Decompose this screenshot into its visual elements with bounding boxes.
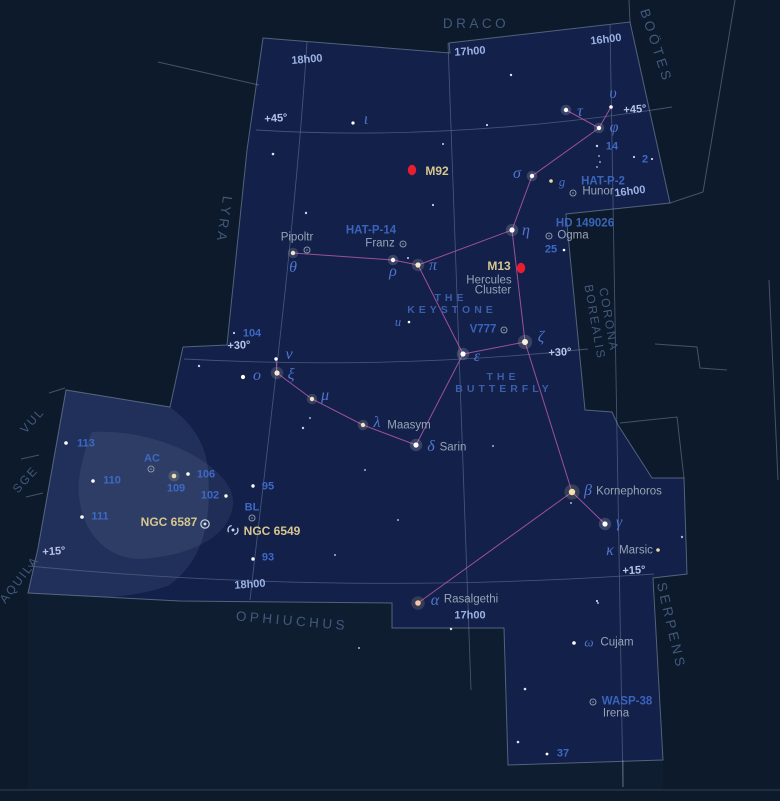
label-star-v777[interactable]: V777 bbox=[470, 323, 497, 336]
label-hunor[interactable]: Hunor bbox=[582, 185, 613, 198]
label-star-mu[interactable]: μ bbox=[321, 387, 329, 405]
label-star-u[interactable]: u bbox=[395, 315, 401, 329]
label-star-g[interactable]: g bbox=[559, 175, 565, 189]
label-star-rho[interactable]: ρ bbox=[389, 263, 397, 281]
label-keystone-2: KEYSTONE bbox=[407, 304, 497, 316]
label-star-111[interactable]: 111 bbox=[91, 511, 108, 524]
label-star-iota[interactable]: ι bbox=[364, 111, 368, 129]
label-ogma[interactable]: Ogma bbox=[557, 229, 588, 242]
label-star-lambda[interactable]: λ bbox=[374, 414, 381, 432]
label-star-eta[interactable]: η bbox=[522, 222, 530, 240]
label-serpens: SERPENS bbox=[653, 581, 688, 671]
label-m13[interactable]: M13 bbox=[487, 260, 510, 274]
label-dec-15-right: +15° bbox=[622, 564, 646, 578]
label-star-delta[interactable]: δ bbox=[427, 438, 434, 456]
label-lyra: LYRA bbox=[213, 195, 235, 245]
label-star-104[interactable]: 104 bbox=[243, 328, 261, 341]
label-ophiuchus: OPHIUCHUS bbox=[235, 608, 348, 633]
label-ra-16h-top: 16h00 bbox=[590, 32, 623, 48]
star-chart: DRACOBOÖTESLYRACORONABOREALISSERPENSOPHI… bbox=[0, 0, 780, 801]
label-butterfly-1: THE bbox=[487, 371, 520, 383]
label-star-109[interactable]: 109 bbox=[167, 483, 185, 496]
label-ngc-6549[interactable]: NGC 6549 bbox=[244, 525, 301, 539]
label-dec-30-right: +30° bbox=[548, 346, 572, 360]
label-cujam[interactable]: Cujam bbox=[600, 636, 633, 649]
label-star-phi[interactable]: φ bbox=[610, 119, 619, 137]
label-star-theta[interactable]: θ bbox=[289, 259, 297, 277]
label-marsic[interactable]: Marsic bbox=[619, 544, 653, 557]
label-ra-18h-bottom: 18h00 bbox=[234, 578, 266, 593]
label-star-93[interactable]: 93 bbox=[262, 552, 274, 565]
label-maasym[interactable]: Maasym bbox=[387, 419, 430, 432]
label-dec-45-right: +45° bbox=[623, 103, 647, 117]
label-bootes: BOÖTES bbox=[637, 7, 676, 85]
label-star-nu[interactable]: ν bbox=[285, 346, 292, 364]
label-star-106[interactable]: 106 bbox=[197, 469, 215, 482]
label-sge: SGE bbox=[10, 464, 41, 497]
label-star-omicron[interactable]: ο bbox=[253, 367, 261, 385]
label-star-beta[interactable]: β bbox=[584, 482, 592, 500]
label-pipoltr[interactable]: Pipoltr bbox=[281, 231, 314, 244]
label-dec-30-left: +30° bbox=[227, 339, 251, 353]
label-vul: VUL bbox=[18, 405, 48, 436]
label-star-102[interactable]: 102 bbox=[201, 490, 219, 503]
label-rasalgethi[interactable]: Rasalgethi bbox=[444, 593, 498, 606]
label-ra-17h-bottom: 17h00 bbox=[454, 610, 485, 623]
label-keystone-1: THE bbox=[435, 292, 468, 304]
label-ra-17h-top: 17h00 bbox=[454, 45, 486, 60]
label-m92[interactable]: M92 bbox=[425, 165, 448, 179]
label-kornephoros[interactable]: Kornephoros bbox=[596, 485, 662, 498]
label-star-ac[interactable]: AC bbox=[144, 453, 160, 466]
label-star-pi[interactable]: π bbox=[429, 257, 437, 275]
label-corona-borealis: CORONABOREALIS bbox=[581, 281, 621, 361]
label-dec-45-left: +45° bbox=[264, 112, 288, 126]
label-star-omega[interactable]: ω bbox=[584, 636, 593, 651]
label-layer: DRACOBOÖTESLYRACORONABOREALISSERPENSOPHI… bbox=[0, 0, 780, 801]
label-star-37[interactable]: 37 bbox=[557, 748, 569, 761]
label-ra-18h-top: 18h00 bbox=[291, 52, 323, 67]
label-star-tau[interactable]: τ bbox=[577, 103, 583, 121]
label-ngc-6587[interactable]: NGC 6587 bbox=[141, 516, 198, 530]
label-star-alpha[interactable]: α bbox=[431, 592, 439, 610]
label-star-bl[interactable]: BL bbox=[245, 502, 260, 515]
label-star-upsilon[interactable]: υ bbox=[609, 85, 616, 103]
label-sarin[interactable]: Sarin bbox=[440, 441, 467, 454]
label-hercules-cluster-2[interactable]: Cluster bbox=[475, 284, 511, 297]
label-hat-p-14[interactable]: HAT-P-14 bbox=[346, 224, 396, 237]
label-dec-15-left: +15° bbox=[42, 545, 66, 559]
label-star-25[interactable]: 25 bbox=[545, 244, 557, 257]
label-star-zeta[interactable]: ζ bbox=[538, 329, 544, 347]
label-star-epsilon[interactable]: ε bbox=[474, 348, 480, 366]
label-star-gamma[interactable]: γ bbox=[616, 514, 622, 532]
label-aquila: AQUILA bbox=[0, 554, 43, 607]
label-irena[interactable]: Irena bbox=[603, 707, 629, 720]
label-franz[interactable]: Franz bbox=[365, 237, 394, 250]
label-star-113[interactable]: 113 bbox=[77, 438, 95, 451]
label-star-2[interactable]: 2 bbox=[642, 154, 648, 167]
label-draco: DRACO bbox=[443, 16, 509, 32]
label-star-kappa[interactable]: κ bbox=[606, 542, 614, 560]
label-star-sigma[interactable]: σ bbox=[513, 165, 521, 183]
label-star-14[interactable]: 14 bbox=[606, 141, 618, 154]
label-star-110[interactable]: 110 bbox=[103, 475, 121, 488]
label-star-xi[interactable]: ξ bbox=[288, 366, 295, 384]
label-star-95[interactable]: 95 bbox=[262, 481, 274, 494]
label-butterfly-2: BUTTERFLY bbox=[455, 383, 552, 395]
